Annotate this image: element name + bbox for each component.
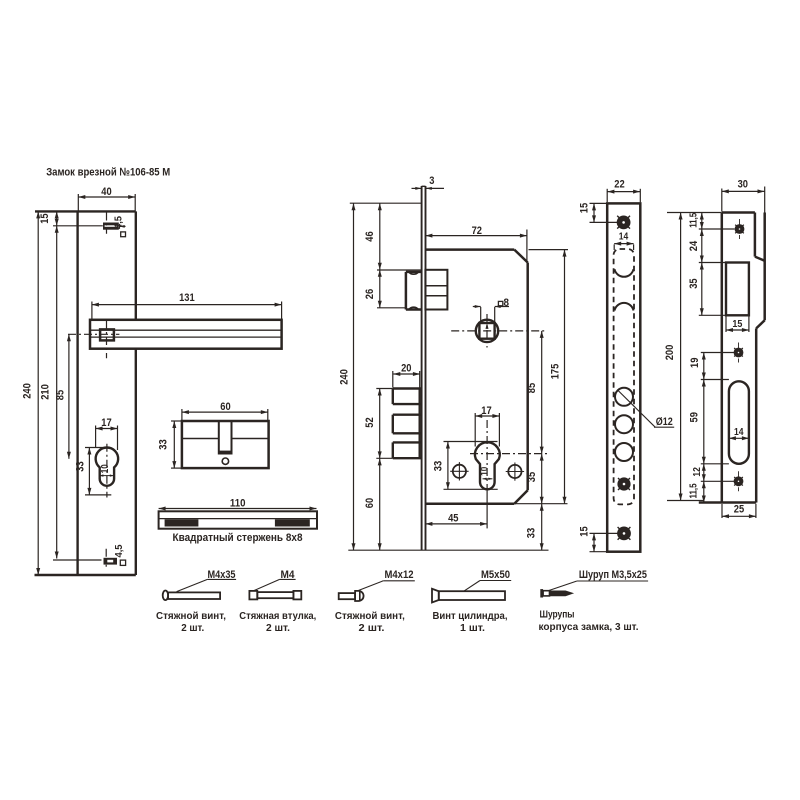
svg-text:15: 15	[732, 319, 742, 330]
svg-text:35: 35	[526, 472, 538, 482]
svg-text:М4х12: М4х12	[385, 569, 414, 581]
svg-text:35: 35	[688, 278, 700, 288]
svg-text:4,5: 4,5	[113, 215, 124, 229]
svg-text:72: 72	[472, 225, 482, 237]
svg-text:Стяжной винт,: Стяжной винт,	[156, 611, 226, 622]
svg-text:59: 59	[688, 412, 700, 422]
svg-text:М5х50: М5х50	[481, 569, 510, 581]
svg-text:2 шт.: 2 шт.	[181, 623, 204, 634]
svg-text:Квадратный стержень 8х8: Квадратный стержень 8х8	[173, 532, 303, 544]
svg-text:52: 52	[364, 417, 376, 427]
svg-text:240: 240	[339, 369, 351, 385]
svg-text:131: 131	[179, 292, 195, 304]
svg-text:85: 85	[55, 390, 67, 400]
svg-text:11,5: 11,5	[688, 212, 699, 227]
svg-text:15: 15	[39, 213, 51, 223]
svg-text:Ø12: Ø12	[656, 416, 673, 428]
svg-text:33: 33	[432, 461, 444, 471]
svg-text:26: 26	[364, 289, 376, 299]
svg-text:25: 25	[734, 504, 744, 516]
svg-text:12: 12	[692, 467, 703, 477]
svg-text:175: 175	[549, 364, 561, 380]
svg-text:Шурупы: Шурупы	[540, 609, 575, 620]
svg-text:45: 45	[448, 512, 458, 524]
svg-text:корпуса замка, 3 шт.: корпуса замка, 3 шт.	[539, 622, 639, 633]
svg-text:30: 30	[738, 179, 748, 191]
svg-text:200: 200	[664, 345, 676, 361]
svg-text:19: 19	[689, 358, 701, 368]
svg-text:Стяжной винт,: Стяжной винт,	[335, 611, 405, 622]
svg-text:40: 40	[101, 186, 111, 198]
svg-text:2 шт.: 2 шт.	[359, 623, 385, 634]
svg-text:10: 10	[479, 467, 490, 476]
svg-text:3: 3	[429, 175, 434, 187]
svg-text:33: 33	[158, 439, 170, 449]
svg-text:14: 14	[734, 427, 744, 438]
svg-text:33: 33	[74, 461, 86, 471]
svg-text:22: 22	[614, 179, 624, 191]
svg-text:15: 15	[579, 203, 591, 213]
svg-text:15: 15	[579, 526, 591, 536]
svg-text:Стяжная втулка,: Стяжная втулка,	[239, 611, 316, 622]
svg-text:24: 24	[688, 240, 700, 251]
svg-text:60: 60	[220, 401, 230, 413]
svg-text:60: 60	[364, 498, 376, 508]
svg-text:Замок врезной №106-85 М: Замок врезной №106-85 М	[46, 166, 170, 178]
svg-text:110: 110	[230, 497, 246, 509]
svg-text:14: 14	[619, 231, 629, 242]
svg-text:Шуруп М3,5х25: Шуруп М3,5х25	[579, 569, 647, 581]
svg-text:46: 46	[364, 231, 376, 241]
svg-text:11,5: 11,5	[688, 483, 699, 498]
svg-text:210: 210	[40, 384, 52, 400]
svg-text:Винт цилиндра,: Винт цилиндра,	[433, 611, 508, 622]
svg-text:17: 17	[101, 417, 111, 429]
svg-text:10: 10	[100, 464, 111, 473]
svg-text:85: 85	[526, 383, 538, 393]
svg-text:8: 8	[504, 297, 510, 309]
svg-text:17: 17	[481, 405, 491, 417]
svg-text:33: 33	[525, 528, 537, 538]
svg-text:20: 20	[401, 363, 411, 375]
svg-text:1 шт.: 1 шт.	[460, 623, 485, 634]
svg-text:2 шт.: 2 шт.	[266, 623, 290, 634]
svg-text:4,5: 4,5	[114, 544, 125, 558]
svg-text:240: 240	[22, 383, 34, 399]
